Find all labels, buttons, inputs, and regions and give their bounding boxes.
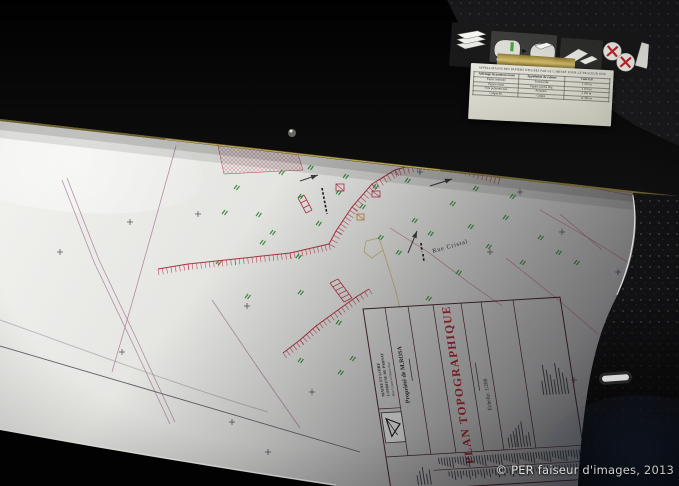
photo-scene: Rue Cristal MAINE ET LOIRE COMMUNE DE PA…: [0, 0, 679, 486]
roller-highlight-glow: [599, 371, 633, 385]
paper-types-table: Affichage du panneau avantAppellation du…: [472, 72, 610, 103]
paper-types-note: APPELLATIONS DES PAPIERS UTILISES PAR LE…: [468, 63, 614, 126]
photo-credit: © PER faiseur d'images, 2013: [496, 463, 674, 477]
lid-screw-glint: [290, 130, 293, 133]
